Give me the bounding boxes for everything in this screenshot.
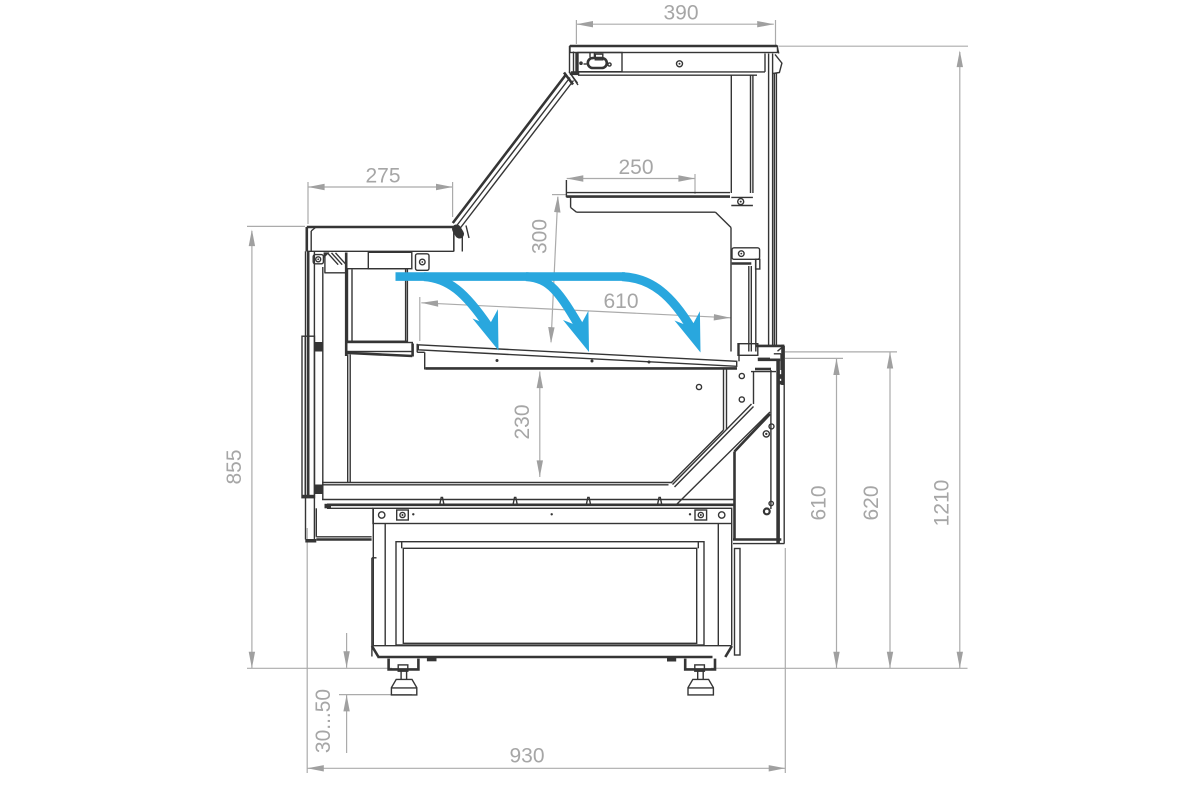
svg-text:250: 250: [618, 156, 653, 179]
svg-text:390: 390: [663, 2, 698, 25]
svg-text:610: 610: [603, 290, 638, 313]
svg-text:300: 300: [529, 219, 552, 254]
svg-text:30...50: 30...50: [312, 689, 335, 753]
svg-text:610: 610: [808, 485, 831, 520]
svg-text:930: 930: [509, 745, 544, 768]
svg-text:1210: 1210: [931, 480, 954, 527]
svg-text:855: 855: [223, 449, 246, 484]
svg-text:620: 620: [860, 485, 883, 520]
svg-text:275: 275: [365, 165, 400, 188]
svg-text:230: 230: [511, 404, 534, 439]
